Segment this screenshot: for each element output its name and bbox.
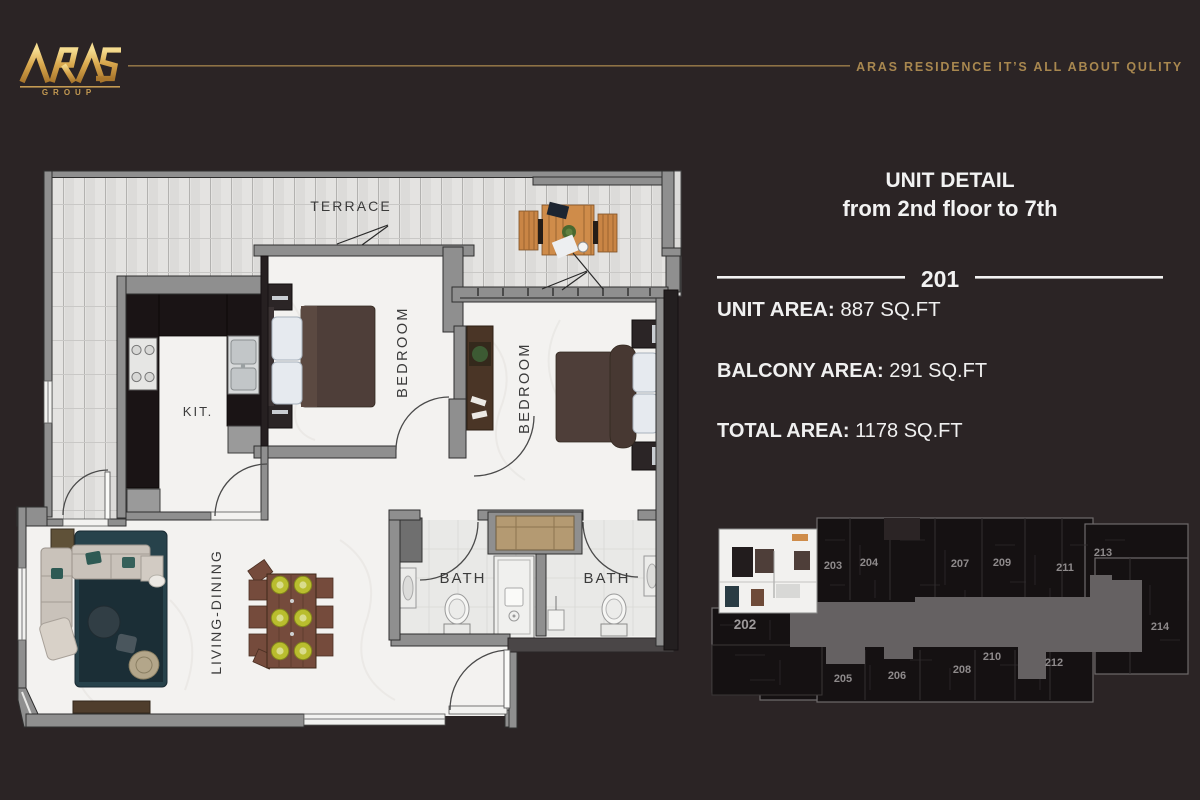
svg-text:201: 201 <box>921 266 960 292</box>
svg-text:211: 211 <box>1056 562 1074 574</box>
svg-text:202: 202 <box>734 617 757 632</box>
svg-text:UNIT AREA: 887 SQ.FT: UNIT AREA: 887 SQ.FT <box>717 298 941 321</box>
svg-text:204: 204 <box>860 557 879 569</box>
svg-text:208: 208 <box>953 664 971 676</box>
svg-text:BEDROOM: BEDROOM <box>517 342 533 434</box>
svg-text:205: 205 <box>834 673 852 685</box>
svg-text:206: 206 <box>888 670 906 682</box>
svg-text:209: 209 <box>993 557 1011 569</box>
svg-text:BEDROOM: BEDROOM <box>395 306 411 398</box>
svg-text:UNIT DETAIL: UNIT DETAIL <box>885 169 1014 192</box>
svg-text:210: 210 <box>983 651 1001 663</box>
svg-text:ARAS RESIDENCE IT’S ALL ABOUT: ARAS RESIDENCE IT’S ALL ABOUT QULITY <box>856 60 1183 74</box>
svg-text:TOTAL AREA: 1178 SQ.FT: TOTAL AREA: 1178 SQ.FT <box>717 420 963 442</box>
svg-text:212: 212 <box>1045 657 1063 669</box>
svg-text:213: 213 <box>1094 547 1112 559</box>
svg-text:from 2nd floor to 7th: from 2nd floor to 7th <box>842 196 1057 221</box>
svg-text:GROUP: GROUP <box>42 88 96 97</box>
svg-text:KIT.: KIT. <box>183 404 213 419</box>
svg-text:BATH: BATH <box>584 570 631 587</box>
svg-text:203: 203 <box>824 560 842 572</box>
svg-text:207: 207 <box>951 558 969 570</box>
svg-text:TERRACE: TERRACE <box>310 198 392 214</box>
svg-text:214: 214 <box>1151 621 1170 633</box>
svg-text:BATH: BATH <box>440 570 487 587</box>
svg-text:LIVING-DINING: LIVING-DINING <box>208 549 224 675</box>
svg-text:BALCONY AREA: 291 SQ.FT: BALCONY AREA: 291 SQ.FT <box>717 360 987 382</box>
